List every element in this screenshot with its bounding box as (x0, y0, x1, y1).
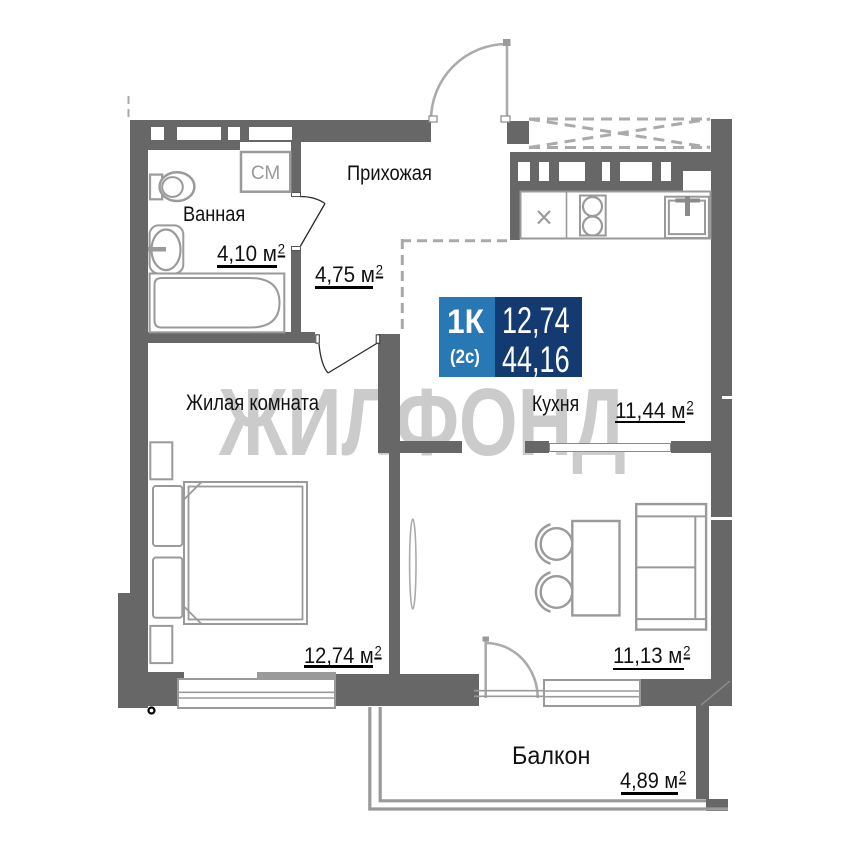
svg-text:СМ: СМ (251, 163, 280, 184)
